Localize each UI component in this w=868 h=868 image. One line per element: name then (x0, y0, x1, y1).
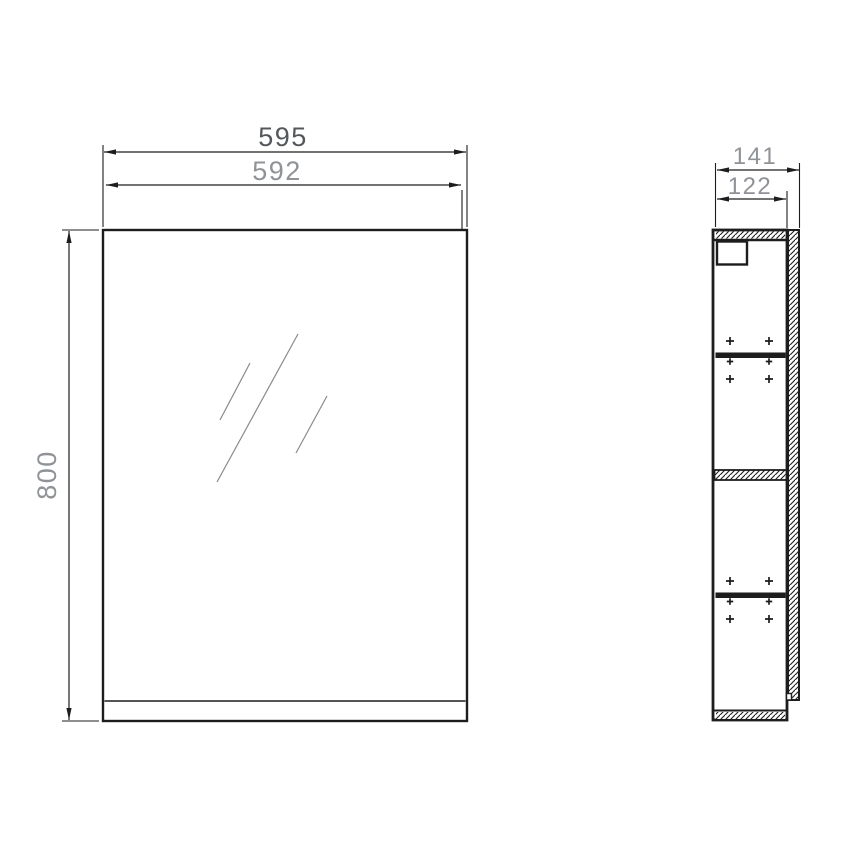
dimension-label-800: 800 (32, 450, 62, 500)
arrowhead-left-icon (104, 149, 116, 154)
arrowhead-right-icon (449, 182, 461, 187)
side-adjustable-shelf-upper (716, 353, 786, 359)
front-cabinet-outline (103, 230, 467, 721)
dimension-label-592: 592 (252, 156, 302, 186)
arrowhead-right-icon (787, 167, 799, 172)
arrowhead-left-icon (717, 167, 729, 172)
side-mounting-rail (717, 242, 747, 265)
side-view (713, 230, 799, 720)
side-top-panel-hatch (716, 232, 785, 239)
arrowhead-right-icon (774, 196, 786, 201)
dimension-side-depth-body: 122 (717, 173, 787, 228)
technical-drawing-canvas: 595 592 800 (0, 0, 868, 868)
arrowhead-up-icon (66, 231, 71, 243)
side-mirror-door-section (788, 230, 799, 700)
arrowhead-right-icon (454, 149, 466, 154)
side-bottom-panel-hatch (716, 712, 785, 719)
side-adjustable-shelf-lower (716, 593, 786, 599)
dimension-label-122: 122 (728, 173, 773, 200)
arrowhead-left-icon (106, 182, 118, 187)
dimension-front-width-door: 592 (106, 156, 462, 231)
side-fixed-shelf-hatch (715, 470, 787, 480)
dimension-label-141: 141 (733, 143, 778, 170)
dimension-label-595: 595 (258, 122, 308, 152)
arrowhead-down-icon (66, 708, 71, 720)
drawing-svg: 595 592 800 (0, 0, 868, 868)
side-door-bottom-notch (787, 694, 792, 701)
dimension-front-height: 800 (32, 230, 99, 721)
front-view (103, 230, 467, 721)
